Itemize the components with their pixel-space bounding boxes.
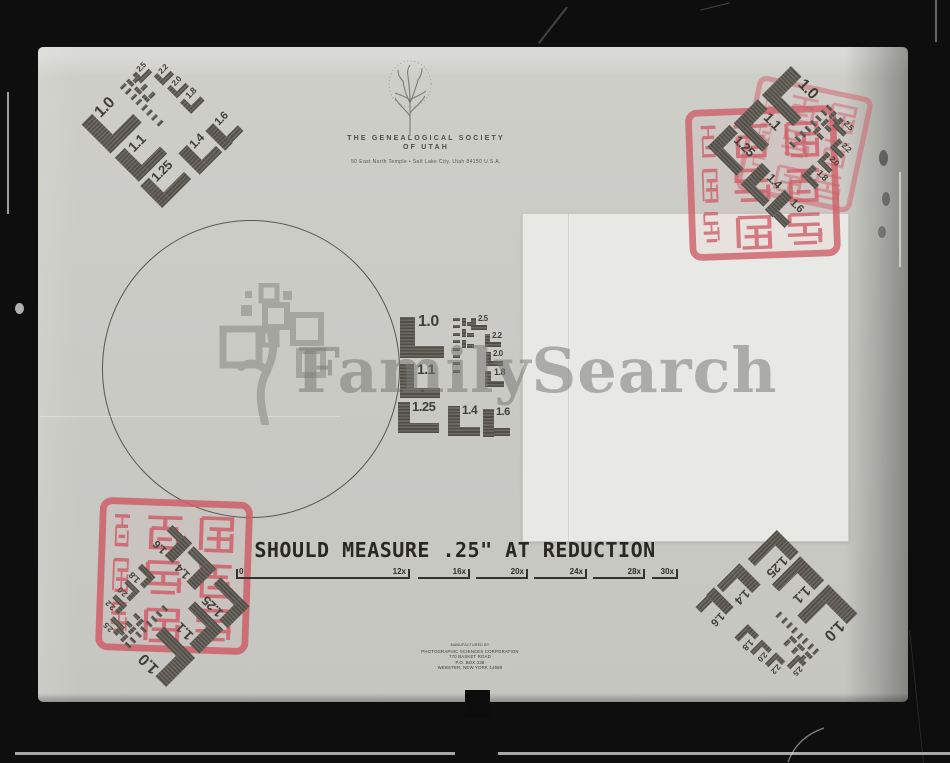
pattern-number: 1.4 <box>765 171 784 190</box>
micro-element <box>453 318 460 321</box>
film-blemish <box>15 303 24 314</box>
ruler-line <box>652 577 678 579</box>
micro-element <box>156 610 163 617</box>
ruler-tick <box>408 569 410 579</box>
micro-element <box>824 124 832 132</box>
pattern-bar <box>476 325 487 330</box>
micro-element <box>151 114 158 121</box>
ruler-label: 30x <box>648 567 674 576</box>
micro-element <box>791 646 799 654</box>
ruler-line <box>593 577 645 579</box>
film-scratch <box>899 172 901 267</box>
micro-element <box>140 626 147 633</box>
pattern-number: 2.5 <box>478 315 488 323</box>
micro-element <box>148 91 156 99</box>
ruler-tick <box>585 569 587 579</box>
micro-element <box>802 638 809 645</box>
ruler-tick <box>643 569 645 579</box>
film-scratch <box>935 0 937 42</box>
film-blemish <box>882 192 890 206</box>
film-scratch <box>15 752 455 755</box>
micro-element <box>776 611 783 618</box>
micro-element <box>141 104 148 111</box>
ruler-line <box>418 577 470 579</box>
micro-element <box>820 109 827 116</box>
film-scratch <box>909 630 924 762</box>
ruler-label: 16x <box>440 567 466 576</box>
micro-element <box>799 654 807 662</box>
pattern-bar <box>410 423 439 433</box>
micro-element <box>797 632 804 639</box>
micro-element <box>810 120 817 127</box>
ruler-label: 12x <box>380 567 406 576</box>
micro-element <box>807 643 814 650</box>
pattern-bar <box>494 428 510 436</box>
pattern-bar <box>448 406 460 436</box>
micro-element <box>816 132 824 140</box>
micro-element <box>135 631 142 638</box>
micro-element <box>799 130 806 137</box>
micro-element <box>150 616 157 623</box>
pattern-bar <box>191 96 204 109</box>
manufacturer-line: WEBSTER, NEW YORK 14580 <box>400 665 540 671</box>
microfilm-frame: THE GENEALOGICAL SOCIETY OF UTAH 50 East… <box>0 0 950 763</box>
micro-element <box>781 617 788 624</box>
micro-element <box>453 325 460 328</box>
pattern-bar <box>773 211 790 228</box>
film-scratch <box>700 2 729 10</box>
society-tree-logo <box>381 58 439 138</box>
micro-element <box>135 98 142 105</box>
micro-element <box>815 115 822 122</box>
pattern-number: 1.6 <box>787 198 805 216</box>
pattern-number: 1.0 <box>418 314 439 330</box>
reduction-caption: SHOULD MEASURE .25" AT REDUCTION <box>240 538 670 562</box>
film-scratch-curve <box>780 718 830 763</box>
ruler-line <box>534 577 587 579</box>
pattern-number: 1.6 <box>496 407 510 418</box>
film-scratch <box>498 752 950 755</box>
micro-element <box>156 119 163 126</box>
society-header: THE GENEALOGICAL SOCIETY OF UTAH 50 East… <box>276 135 576 165</box>
micro-element <box>125 88 132 95</box>
pattern-bar <box>483 409 494 437</box>
ruler-tick <box>526 569 528 579</box>
film-scratch <box>538 6 568 43</box>
ruler-line <box>238 577 410 579</box>
micro-element <box>145 621 152 628</box>
pattern-bar <box>460 427 480 436</box>
micro-element <box>812 648 819 655</box>
film-blemish <box>879 150 888 166</box>
micro-element <box>791 627 798 634</box>
micro-element <box>783 639 791 647</box>
micro-element <box>161 605 168 612</box>
ruler-label: 24x <box>557 567 583 576</box>
ruler-line <box>476 577 528 579</box>
manufacturer-text: MANUFACTURED BY PHOTOGRAPHIC SCIENCES CO… <box>400 643 540 671</box>
micro-element <box>146 109 153 116</box>
micro-element <box>789 141 796 148</box>
micro-element <box>140 84 148 92</box>
society-name-line2: OF UTAH <box>276 144 576 151</box>
pattern-bar <box>696 596 713 613</box>
micro-element <box>826 104 833 111</box>
society-address: 50 East North Temple • Salt Lake City, U… <box>276 159 576 165</box>
micro-element <box>794 136 801 143</box>
ruler-tick <box>468 569 470 579</box>
ruler-zero-label: 0 <box>239 567 265 576</box>
ruler-label: 20x <box>498 567 524 576</box>
familysearch-watermark-text: FamilySearch <box>296 334 777 407</box>
film-blemish <box>878 226 886 238</box>
micro-element <box>786 622 793 629</box>
society-name-line1: THE GENEALOGICAL SOCIETY <box>276 135 576 142</box>
film-scratch <box>7 92 9 214</box>
ruler-tick <box>676 569 678 579</box>
micro-element <box>124 642 131 649</box>
pattern-number: 2.0 <box>828 155 840 167</box>
ruler-label: 28x <box>615 567 641 576</box>
micro-element <box>130 636 137 643</box>
micro-element <box>805 125 812 132</box>
micro-element <box>130 93 137 100</box>
micro-element <box>467 322 475 326</box>
film-notch <box>465 690 490 718</box>
micro-element <box>120 83 127 90</box>
micro-element <box>462 318 466 326</box>
